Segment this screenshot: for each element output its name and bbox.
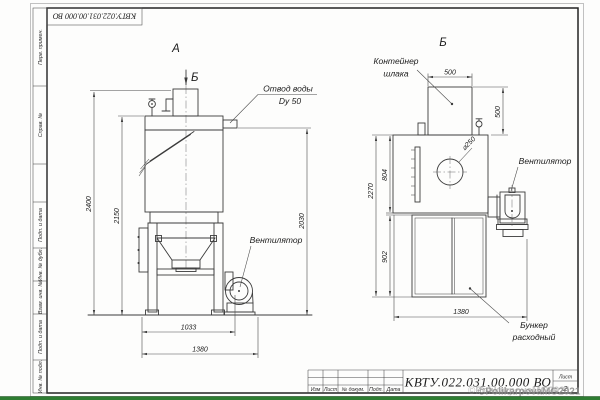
water-outlet-label-2: Dy 50 bbox=[279, 96, 301, 106]
section-arrow-label: Б bbox=[191, 72, 199, 84]
sidebar-label-inv-dubl: Инв. № дубл. bbox=[38, 248, 44, 281]
dim-label-2150: 2150 bbox=[114, 208, 121, 225]
titleblock-col-list: Лист bbox=[323, 387, 338, 393]
dim-label-2030: 2030 bbox=[299, 213, 306, 230]
scrubber-body-side bbox=[393, 135, 488, 213]
titleblock-col-podp: Подп. bbox=[369, 387, 383, 393]
dim-label-902: 902 bbox=[382, 251, 389, 263]
valve-right-view bbox=[476, 119, 482, 135]
chimney bbox=[173, 89, 198, 116]
sidebar-label-podp-data-1: Подп. и дата bbox=[38, 208, 44, 242]
dim-label-804: 804 bbox=[382, 169, 389, 181]
flange-band bbox=[150, 212, 218, 223]
dim-label-d250: ⌀250 bbox=[461, 136, 477, 152]
titleblock-col-doc: № докум. bbox=[342, 387, 365, 393]
sidebar-label-sprav-n: Справ. № bbox=[38, 113, 44, 138]
sidebar-label-vzam-inv: Взам. инв. № bbox=[38, 281, 44, 315]
dim-label-1380-right: 1380 bbox=[453, 309, 469, 316]
bunker-label-2: расходный bbox=[512, 332, 556, 342]
fan-leader-right bbox=[511, 167, 518, 191]
top-designation-box: КВТУ.022.031.00.000 ВО bbox=[47, 8, 142, 25]
slag-container bbox=[428, 87, 472, 135]
dim-label-1033: 1033 bbox=[181, 325, 197, 332]
sheet-cell-label: Лист bbox=[558, 375, 573, 381]
fan-label-left: Вентилятор bbox=[250, 235, 303, 245]
titleblock-col-izm: Изм bbox=[311, 387, 321, 393]
left-view-dimensions: 2400 2150 2030 1033 1380 bbox=[86, 91, 311, 359]
dim-label-500-right: 500 bbox=[495, 106, 502, 118]
engineering-drawing-svg: Перв. примен. Справ. № Подп. и дата Инв.… bbox=[0, 0, 600, 400]
container-label-1: Контейнер bbox=[373, 56, 418, 66]
valve-left-view bbox=[149, 99, 156, 116]
sidebar-label-inv-podl: Инв. № подл. bbox=[38, 360, 44, 393]
water-outlet-stub bbox=[223, 120, 237, 128]
top-stub bbox=[418, 123, 425, 135]
sidebar-stamp-column: Перв. примен. Справ. № Подп. и дата Инв.… bbox=[33, 8, 47, 393]
feed-bunker bbox=[412, 215, 486, 297]
right-view: Б Контейнер шлака 500 500 ⌀250 bbox=[368, 37, 572, 342]
left-view-title: А bbox=[171, 43, 180, 55]
dim-label-2270: 2270 bbox=[368, 183, 375, 200]
right-view-dimensions: 804 902 2270 1380 bbox=[368, 135, 527, 321]
dim-label-2400: 2400 bbox=[86, 196, 93, 213]
access-door bbox=[138, 228, 149, 272]
right-view-title: Б bbox=[439, 37, 447, 49]
fan-right-view bbox=[488, 185, 528, 237]
scrubber-header bbox=[145, 116, 223, 130]
watermark-text: ©PolikarpovaMG2021 bbox=[478, 387, 581, 398]
dim-label-500-top: 500 bbox=[444, 70, 456, 77]
titleblock-col-data: Дата bbox=[386, 387, 401, 393]
drawing-frame bbox=[47, 8, 578, 393]
bunker-leader bbox=[470, 289, 509, 324]
watermark: ©PolikarpovaMG2021 ©PolikarpovaMG2021 bbox=[468, 386, 581, 398]
support-stand bbox=[146, 223, 225, 315]
sidebar-label-podp-data-2: Подп. и дата bbox=[38, 320, 44, 354]
water-outlet-label-1: Отвод воды bbox=[263, 84, 313, 94]
bunker-label-1: Бункер bbox=[520, 320, 548, 330]
fan-leader-left bbox=[240, 246, 251, 287]
container-label-2: шлака bbox=[383, 69, 409, 79]
dim-label-1380-left: 1380 bbox=[192, 347, 208, 354]
pipe-fitting bbox=[166, 99, 173, 111]
bottom-green-bar bbox=[0, 397, 600, 400]
ladder-rail bbox=[411, 147, 420, 202]
scrubber-body bbox=[145, 130, 223, 212]
fan-left-view bbox=[224, 272, 255, 315]
drawing-sheet: Перв. примен. Справ. № Подп. и дата Инв.… bbox=[0, 0, 600, 400]
fan-label-right: Вентилятор bbox=[519, 156, 572, 166]
inner-baffle-1 bbox=[150, 132, 194, 162]
top-designation-text: КВТУ.022.031.00.000 ВО bbox=[53, 12, 138, 21]
sidebar-label-perv-primen: Перв. примен. bbox=[38, 29, 44, 65]
inner-baffle-2 bbox=[147, 135, 191, 165]
left-view: А Б Отвод воды Dy 50 bbox=[86, 43, 317, 358]
water-outlet-leader bbox=[230, 95, 258, 124]
